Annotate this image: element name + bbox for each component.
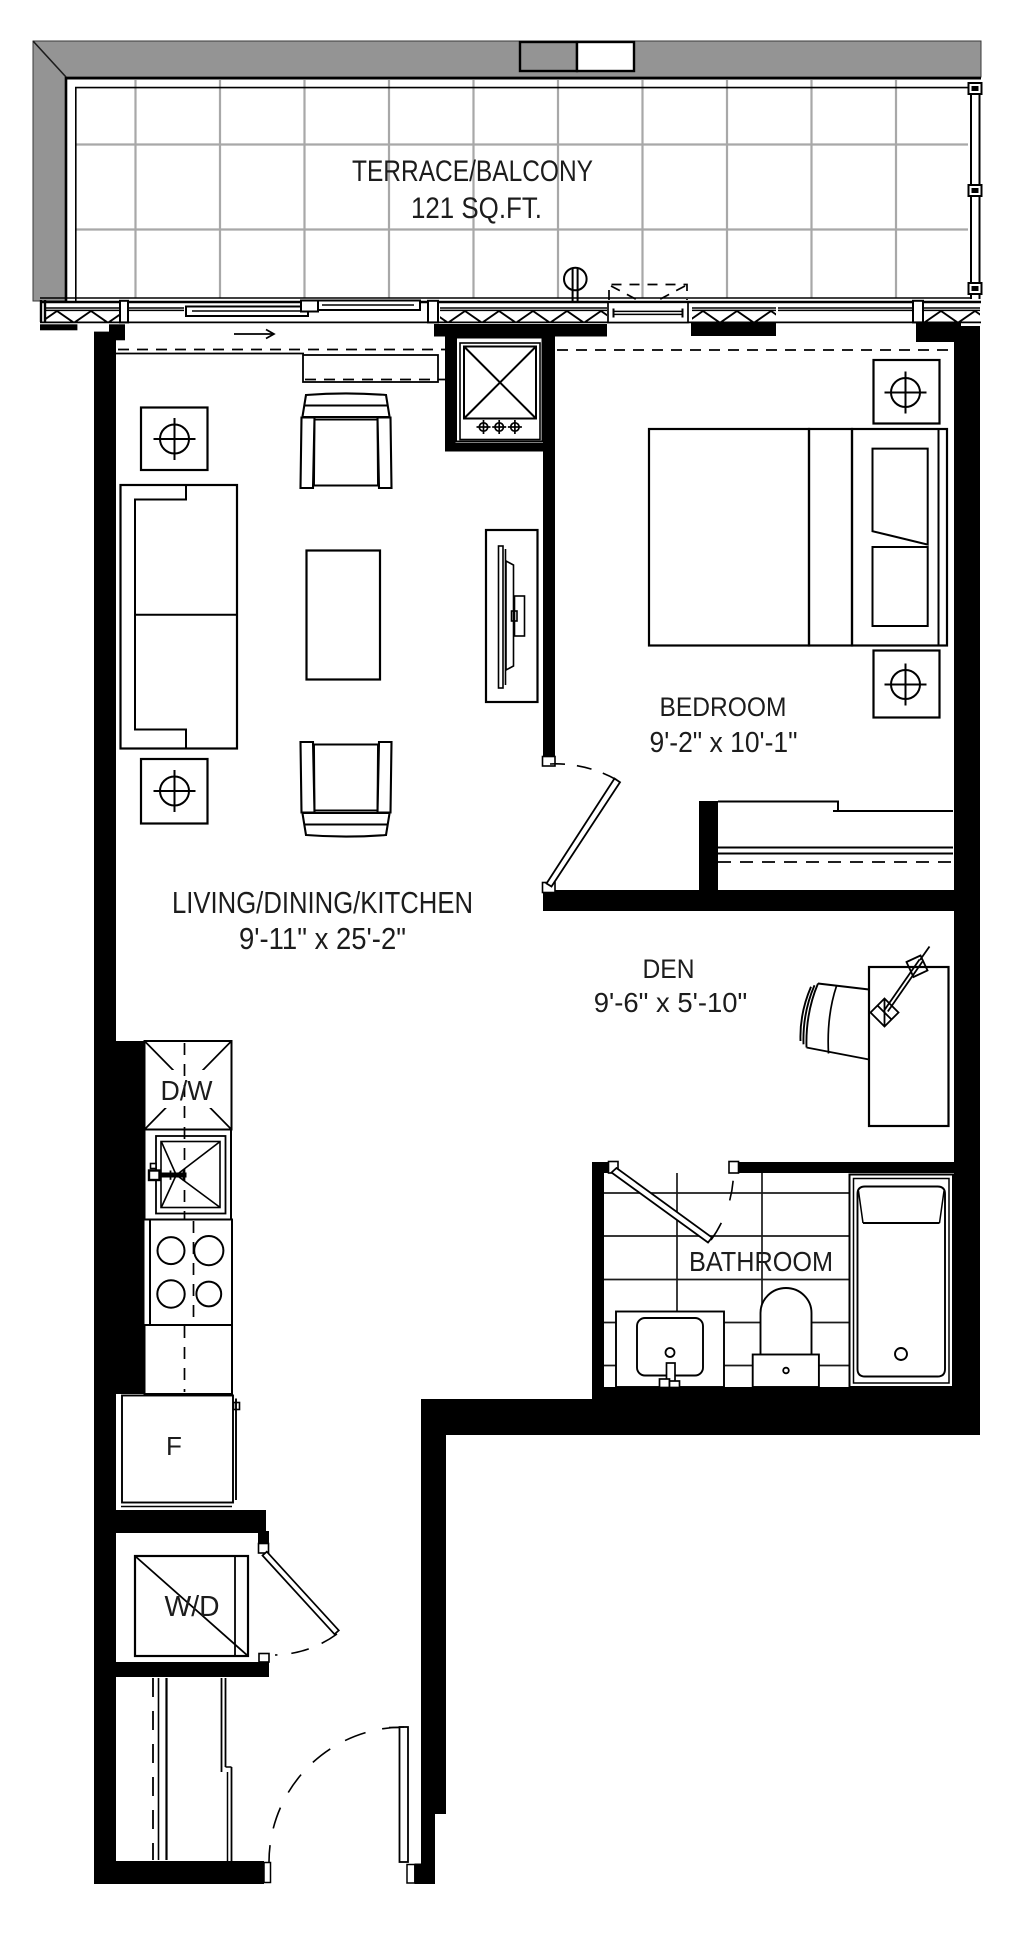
svg-text:BATHROOM: BATHROOM [689,1246,833,1277]
svg-text:9'-11" x 25'-2": 9'-11" x 25'-2" [239,921,406,956]
svg-text:TERRACE/BALCONY: TERRACE/BALCONY [352,155,593,188]
svg-text:121 SQ.FT.: 121 SQ.FT. [411,192,542,225]
svg-text:W/D: W/D [165,1591,220,1623]
svg-text:BEDROOM: BEDROOM [660,692,787,722]
svg-text:9'-2" x 10'-1": 9'-2" x 10'-1" [650,727,798,759]
svg-text:LIVING/DINING/KITCHEN: LIVING/DINING/KITCHEN [172,885,473,920]
svg-text:DEN: DEN [643,954,695,984]
svg-text:F: F [166,1431,182,1461]
svg-text:D/W: D/W [161,1075,214,1106]
svg-text:9'-6" x 5'-10": 9'-6" x 5'-10" [594,987,748,1018]
